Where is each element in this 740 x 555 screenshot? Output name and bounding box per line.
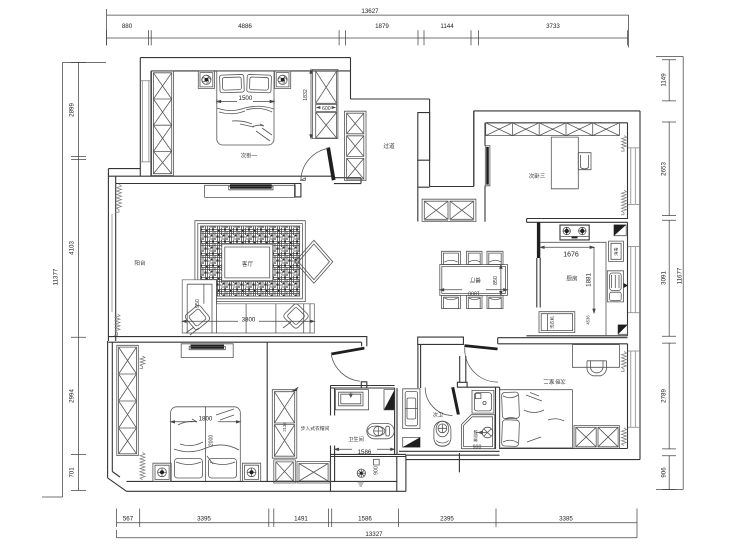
svg-text:2899: 2899: [69, 103, 76, 117]
svg-text:1586: 1586: [358, 516, 372, 523]
svg-text:4886: 4886: [238, 23, 252, 30]
svg-text:900: 900: [374, 466, 380, 475]
svg-text:880: 880: [122, 23, 133, 30]
svg-text:餐厅: 餐厅: [469, 276, 481, 284]
svg-text:淋浴房: 淋浴房: [472, 430, 479, 443]
svg-text:客厅: 客厅: [242, 260, 254, 268]
svg-text:850: 850: [493, 276, 499, 285]
svg-text:1881: 1881: [586, 273, 593, 287]
svg-text:900: 900: [473, 445, 482, 451]
svg-text:3733: 3733: [546, 23, 560, 30]
svg-text:1832: 1832: [303, 89, 309, 101]
svg-text:1149: 1149: [661, 73, 668, 87]
svg-text:次卧一: 次卧一: [241, 152, 258, 160]
svg-text:3800: 3800: [242, 317, 256, 324]
svg-text:过道: 过道: [383, 142, 395, 150]
svg-text:次卫: 次卫: [433, 411, 443, 419]
svg-text:卫生间: 卫生间: [348, 435, 364, 443]
svg-text:3091: 3091: [661, 271, 668, 285]
svg-text:11377: 11377: [53, 268, 60, 285]
svg-text:1879: 1879: [375, 23, 389, 30]
svg-text:1500: 1500: [239, 95, 253, 102]
svg-text:1800: 1800: [468, 290, 480, 296]
svg-text:1586: 1586: [358, 449, 372, 456]
svg-text:阳台: 阳台: [134, 259, 146, 267]
svg-text:1144: 1144: [440, 23, 454, 30]
svg-text:4103: 4103: [69, 241, 76, 255]
svg-text:2000: 2000: [209, 435, 215, 447]
svg-text:2994: 2994: [69, 389, 76, 403]
svg-text:消毒: 消毒: [613, 247, 620, 255]
svg-text:1676: 1676: [563, 252, 579, 259]
svg-text:3395: 3395: [197, 516, 211, 523]
svg-text:4536: 4536: [586, 315, 591, 325]
svg-text:次卧三: 次卧三: [529, 172, 546, 180]
svg-text:13327: 13327: [365, 531, 383, 538]
svg-text:906: 906: [661, 467, 668, 478]
svg-text:1800: 1800: [199, 416, 213, 423]
svg-text:950: 950: [195, 299, 201, 308]
svg-text:3385: 3385: [559, 516, 573, 523]
svg-text:次卧室二: 次卧室二: [543, 378, 566, 386]
svg-text:步入式衣帽间: 步入式衣帽间: [301, 425, 330, 432]
svg-text:13627: 13627: [361, 8, 379, 15]
svg-text:1491: 1491: [294, 516, 308, 523]
svg-text:567: 567: [123, 516, 134, 523]
svg-text:2395: 2395: [440, 516, 454, 523]
svg-text:2789: 2789: [661, 389, 668, 403]
svg-text:2653: 2653: [661, 162, 668, 176]
svg-text:600: 600: [322, 106, 331, 112]
svg-text:2134: 2134: [282, 422, 287, 432]
svg-text:洗衣机: 洗衣机: [549, 315, 556, 328]
svg-text:11677: 11677: [677, 267, 684, 284]
svg-text:厨房: 厨房: [566, 275, 578, 283]
svg-text:701: 701: [69, 467, 76, 478]
